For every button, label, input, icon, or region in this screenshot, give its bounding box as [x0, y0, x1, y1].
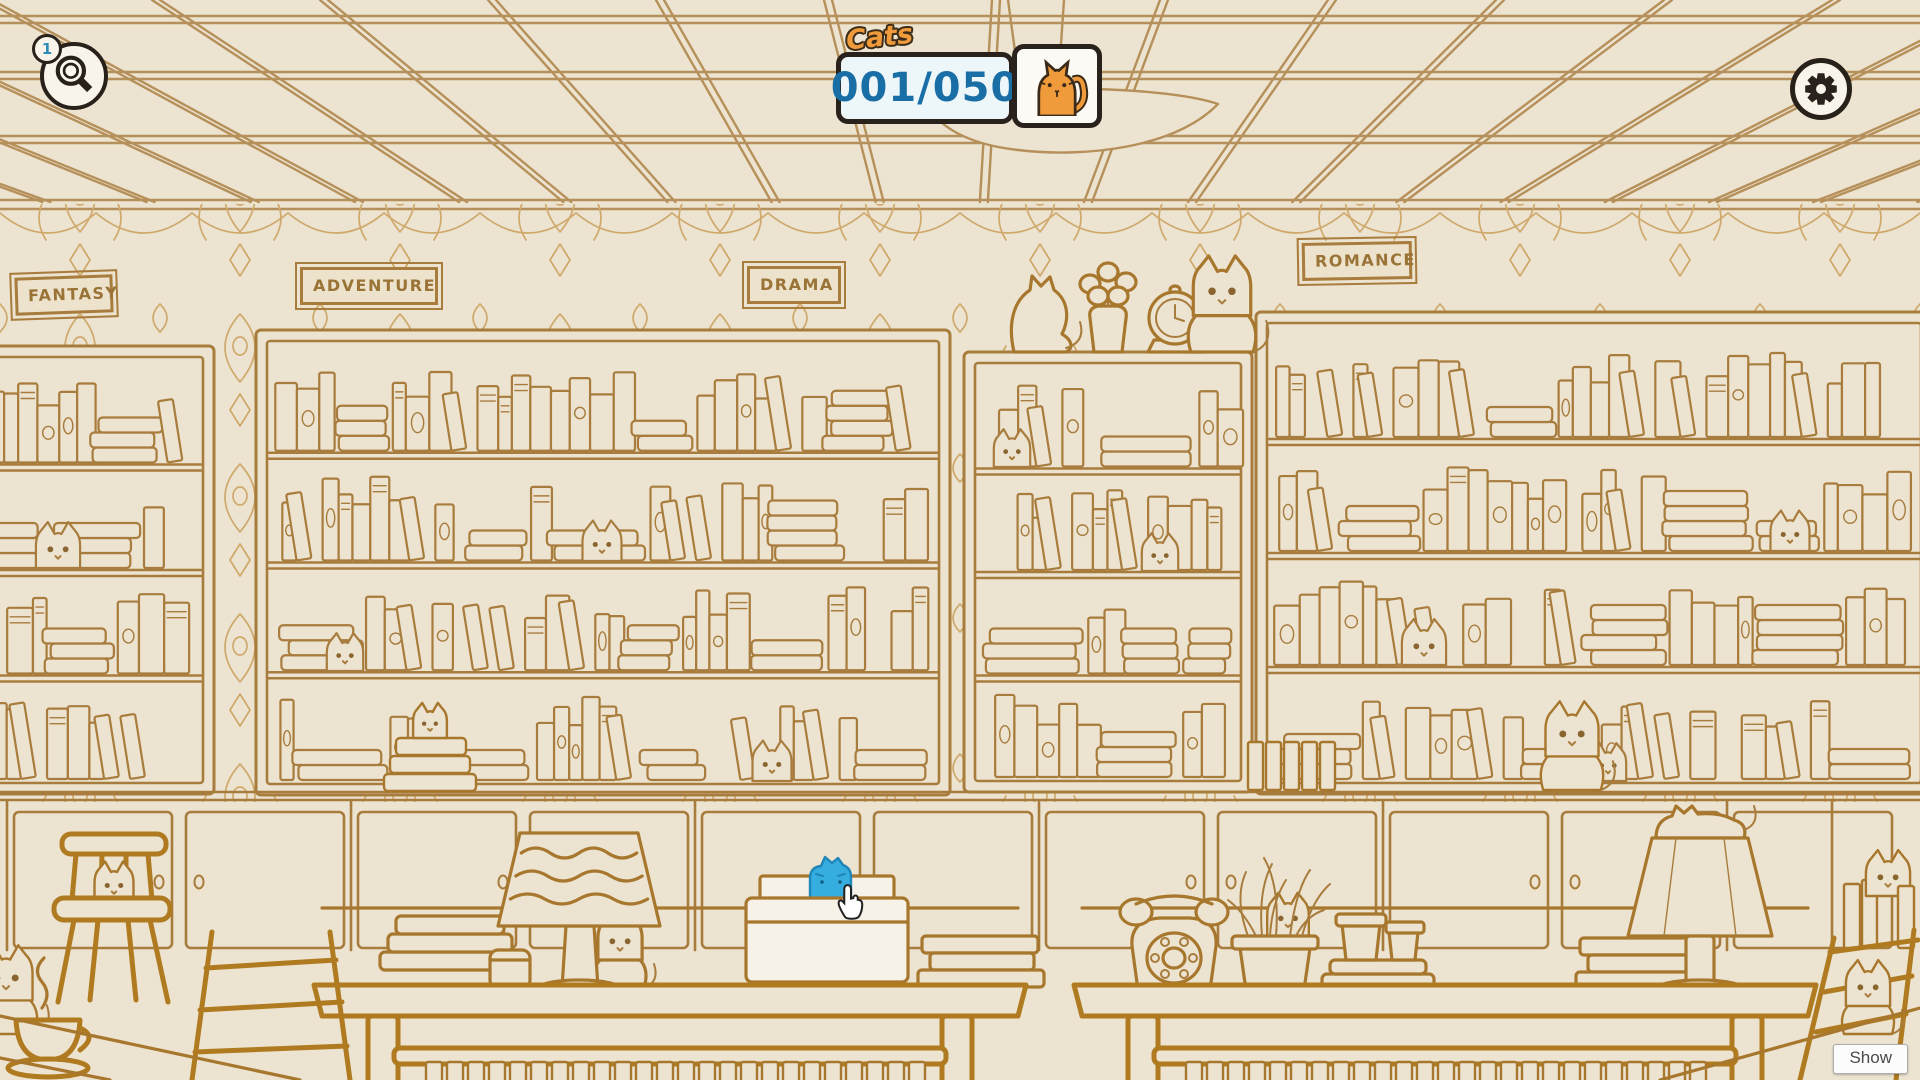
- cat-icon: [1025, 56, 1089, 116]
- magnifier-icon: [51, 53, 97, 99]
- cat-counter: Cats 001/050: [836, 24, 1096, 126]
- shelf-label-adventure: ADVENTURE: [300, 267, 438, 305]
- shelf-label-drama: DRAMA: [747, 266, 841, 304]
- gear-icon: [1802, 70, 1840, 108]
- cat-counter-icon-box: [1012, 44, 1102, 128]
- show-button[interactable]: Show: [1833, 1044, 1908, 1074]
- hint-count-badge: 1: [32, 34, 62, 64]
- shelf-label-fantasy: FANTASY: [14, 274, 113, 315]
- hidden-cats-game-play-area[interactable]: FANTASY ADVENTURE DRAMA ROMANCE 1 Cats 0…: [0, 0, 1920, 1080]
- hand-cursor: [836, 884, 866, 920]
- cat-counter-title: Cats: [845, 19, 915, 57]
- library-line-art-scene: [0, 0, 1920, 1080]
- cat-counter-value-box: 001/050: [836, 52, 1014, 124]
- shelf-label-romance: ROMANCE: [1302, 241, 1413, 281]
- settings-button[interactable]: [1790, 58, 1852, 120]
- cat-counter-value: 001/050: [831, 65, 1020, 111]
- hint-button[interactable]: 1: [40, 42, 108, 110]
